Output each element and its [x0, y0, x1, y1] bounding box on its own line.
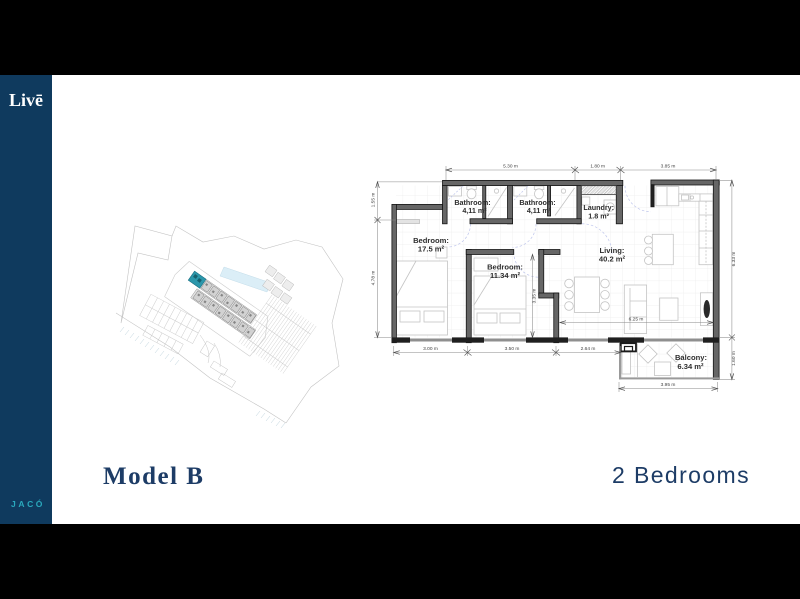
svg-text:6.34 m²: 6.34 m²	[677, 362, 704, 371]
svg-text:3.95 m: 3.95 m	[661, 382, 676, 388]
svg-text:4,11 m²: 4,11 m²	[527, 206, 552, 215]
svg-text:1.8 m²: 1.8 m²	[588, 212, 609, 221]
svg-text:4.78 m: 4.78 m	[371, 271, 377, 286]
svg-text:Balcony:: Balcony:	[675, 353, 707, 362]
svg-text:3.85 m: 3.85 m	[661, 164, 676, 170]
svg-text:3.50 m: 3.50 m	[505, 346, 520, 352]
svg-text:6.33 m: 6.33 m	[731, 252, 737, 267]
svg-text:1.60 m: 1.60 m	[731, 351, 737, 366]
svg-text:40.2 m²: 40.2 m²	[599, 254, 626, 263]
svg-text:6.25 m: 6.25 m	[629, 316, 644, 322]
svg-text:17.5 m²: 17.5 m²	[418, 244, 445, 253]
svg-text:1.55 m: 1.55 m	[371, 193, 377, 208]
svg-text:11.34 m²: 11.34 m²	[490, 271, 520, 280]
svg-text:4,11 m²: 4,11 m²	[462, 206, 487, 215]
svg-text:1.80 m: 1.80 m	[590, 164, 605, 170]
svg-text:2.64 m: 2.64 m	[581, 346, 596, 352]
svg-text:3.00 m: 3.00 m	[423, 346, 438, 352]
svg-text:5.30 m: 5.30 m	[503, 164, 518, 170]
svg-text:3.35 m: 3.35 m	[531, 289, 537, 304]
